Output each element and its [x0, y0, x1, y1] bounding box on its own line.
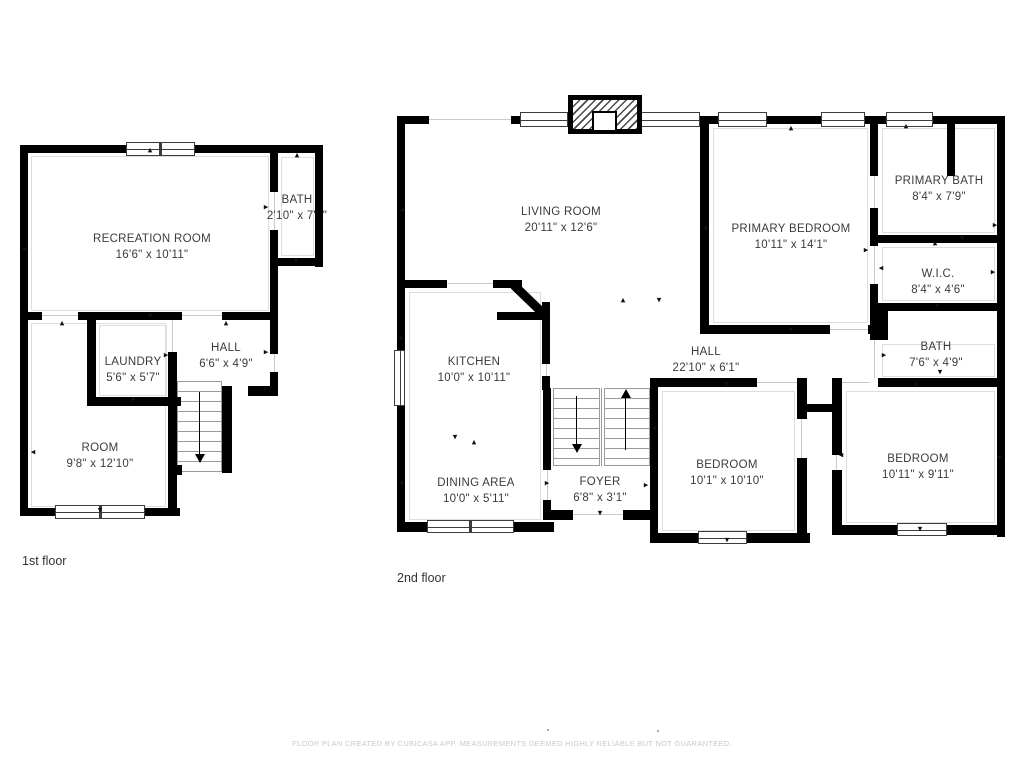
wall-segment [767, 116, 821, 124]
wall-segment [878, 303, 1005, 311]
door-opening-line [874, 340, 875, 378]
door-opening-line [874, 246, 875, 284]
first-floor-label: 1st floor [22, 554, 66, 568]
room-dims: 7'6" x 4'9" [909, 355, 963, 371]
door-swing-marker-icon: ▾ [724, 380, 729, 389]
room-name: LIVING ROOM [521, 204, 601, 220]
room-name: RECREATION ROOM [93, 231, 211, 247]
window-mullion [469, 521, 472, 532]
door-swing-marker-icon: ▴ [472, 438, 477, 447]
door-swing-marker-icon: ▾ [598, 509, 603, 518]
wall-segment [542, 376, 550, 390]
wall-segment [397, 280, 447, 288]
room-dims: 8'4" x 4'6" [911, 282, 965, 298]
door-swing-marker-icon: ▾ [960, 234, 965, 243]
door-swing-marker-icon: ◂ [398, 334, 403, 343]
stair-arrow-stem [625, 398, 626, 450]
room-dims: 6'8" x 3'1" [573, 490, 627, 506]
room-dims: 6'6" x 4'9" [199, 356, 253, 372]
wall-segment [868, 325, 878, 334]
stair-down-arrow-icon [195, 454, 205, 463]
door-swing-marker-icon: ◂ [652, 424, 657, 433]
window-icon [698, 531, 747, 544]
door-swing-marker-icon: ◂ [31, 448, 36, 457]
room-name: ROOM [67, 440, 134, 456]
door-opening-line [546, 364, 547, 376]
wall-segment [870, 284, 878, 312]
door-swing-marker-icon: ◂ [400, 206, 405, 215]
door-swing-marker-icon: ▾ [657, 296, 662, 305]
room-dims: 9'8" x 12'10" [67, 456, 134, 472]
room-label-recreation: RECREATION ROOM 16'6" x 10'11" [93, 231, 211, 263]
wall-segment [650, 378, 757, 387]
door-swing-marker-icon: ▸ [545, 479, 550, 488]
wall-segment [797, 458, 807, 533]
door-opening-line [874, 176, 875, 208]
door-swing-marker-icon: ▾ [98, 506, 103, 515]
room-label-laundry: LAUNDRY 5'6" x 5'7" [105, 354, 162, 386]
room-name: W.I.C. [911, 266, 965, 282]
wall-segment [933, 116, 1005, 124]
room-label-dining: DINING AREA 10'0" x 5'11" [437, 475, 514, 507]
door-swing-marker-icon: ▴ [789, 124, 794, 133]
window-pane-line [400, 351, 401, 405]
stair-down-arrow-icon [572, 444, 582, 453]
wall-segment [168, 397, 177, 516]
room-name: DINING AREA [437, 475, 514, 491]
window-pane-line [719, 120, 766, 121]
room-label-bedroom-left: BEDROOM 10'1" x 10'10" [690, 457, 764, 489]
wall-segment [270, 258, 278, 320]
room-label-kitchen: KITCHEN 10'0" x 10'11" [438, 354, 511, 386]
second-floor-label: 2nd floor [397, 571, 446, 585]
window-icon [394, 350, 405, 406]
door-opening-line [801, 419, 802, 458]
wall-segment [870, 208, 878, 246]
door-swing-marker-icon: ▸ [864, 246, 869, 255]
door-swing-marker-icon: ▸ [993, 221, 998, 230]
window-mullion [159, 143, 162, 155]
door-swing-marker-icon: ▸ [991, 268, 996, 277]
stair-arrow-stem [576, 396, 577, 446]
window-icon [886, 112, 933, 127]
room-name: HALL [199, 340, 253, 356]
window-pane-line [887, 120, 932, 121]
staircase [604, 388, 650, 466]
wall-segment [175, 465, 182, 475]
door-swing-marker-icon: ▸ [998, 453, 1003, 462]
wall-segment [397, 116, 405, 288]
window-icon [641, 112, 700, 127]
wall-segment [797, 404, 842, 412]
door-swing-marker-icon: ▴ [148, 146, 153, 155]
room-name: PRIMARY BEDROOM [731, 221, 850, 237]
room-dims: 5'6" x 5'7" [105, 370, 162, 386]
wall-segment [248, 386, 278, 396]
door-swing-marker-icon: ▴ [914, 379, 919, 388]
room-dims: 20'11" x 12'6" [521, 220, 601, 236]
room-name: PRIMARY BATH [895, 173, 984, 189]
door-swing-marker-icon: ▸ [882, 351, 887, 360]
wall-segment [709, 325, 830, 334]
wall-segment [700, 116, 718, 124]
door-swing-marker-icon: ◂ [839, 451, 844, 460]
stair-arrow-stem [199, 392, 200, 456]
wall-segment [20, 312, 42, 320]
window-pane-line [521, 120, 567, 121]
room-name: KITCHEN [438, 354, 511, 370]
stair-up-arrow-icon [621, 389, 631, 398]
door-swing-marker-icon: ◂ [399, 479, 404, 488]
door-swing-marker-icon: ◂ [703, 224, 708, 233]
door-opening-line [172, 318, 173, 352]
disclaimer-text: FLOOR PLAN CREATED BY CUBICASA APP. MEAS… [0, 739, 1024, 748]
door-swing-marker-icon: ◂ [22, 245, 27, 254]
wall-segment [397, 288, 405, 530]
wall-segment [543, 510, 573, 520]
room-label-wic: W.I.C. 8'4" x 4'6" [911, 266, 965, 298]
door-opening-line [836, 455, 837, 470]
stray-dot [547, 729, 549, 731]
room-name: BEDROOM [690, 457, 764, 473]
window-icon [821, 112, 865, 127]
door-swing-marker-icon: ▾ [935, 302, 940, 311]
wall-segment [878, 378, 1005, 387]
room-dims: 16'6" x 10'11" [93, 247, 211, 263]
room-dims: 10'1" x 10'10" [690, 473, 764, 489]
door-opening-line [830, 329, 868, 330]
window-pane-line [699, 538, 746, 539]
room-label-living: LIVING ROOM 20'11" x 12'6" [521, 204, 601, 236]
door-opening-line [757, 382, 797, 383]
room-name: BATH [909, 339, 963, 355]
wall-segment [832, 470, 842, 525]
room-label-bath-2f: BATH 7'6" x 4'9" [909, 339, 963, 371]
door-swing-marker-icon: ▸ [164, 351, 169, 360]
door-opening-line [429, 119, 511, 120]
room-name: LAUNDRY [105, 354, 162, 370]
wall-segment [947, 124, 955, 176]
door-swing-marker-icon: ▾ [918, 525, 923, 534]
room-dims: 10'0" x 5'11" [437, 491, 514, 507]
door-opening-line [182, 315, 222, 316]
room-name: HALL [673, 344, 740, 360]
room-dims: 8'4" x 7'9" [895, 189, 984, 205]
door-opening-line [274, 354, 275, 372]
stray-dot [657, 730, 659, 732]
room-label-primary-bedroom: PRIMARY BEDROOM 10'11" x 14'1" [731, 221, 850, 253]
door-swing-marker-icon: ▾ [294, 257, 299, 266]
room-name: BEDROOM [882, 451, 954, 467]
wall-segment [832, 378, 842, 455]
room-label-bedroom-right: BEDROOM 10'11" x 9'11" [882, 451, 954, 483]
wall-segment [315, 145, 323, 267]
door-swing-marker-icon: ▴ [295, 151, 300, 160]
wall-segment [878, 235, 1005, 243]
door-swing-marker-icon: ▾ [148, 312, 153, 321]
wall-segment [20, 145, 28, 516]
window-pane-line [642, 120, 699, 121]
wall-segment [623, 510, 658, 520]
room-label-foyer: FOYER 6'8" x 3'1" [573, 474, 627, 506]
floor-plan-page: ▴◂▴▾▸▾▴▴▸▸▾▾◂▴▾◂▸▴◂▸▴▴▾▸◂▾▸▴▾▾◂▾▴◂▸▾▸◂▾◂… [0, 0, 1024, 768]
room-dims: 10'0" x 10'11" [438, 370, 511, 386]
door-swing-marker-icon: ▴ [621, 296, 626, 305]
fireplace-firebox-icon [592, 111, 617, 132]
room-label-hall-1f: HALL 6'6" x 4'9" [199, 340, 253, 372]
door-swing-marker-icon: ▸ [644, 481, 649, 490]
wall-segment [87, 318, 96, 406]
wall-segment [865, 116, 886, 124]
door-opening-line [842, 382, 870, 383]
wall-segment [797, 378, 807, 419]
door-swing-marker-icon: ▴ [904, 122, 909, 131]
room-label-primary-bath: PRIMARY BATH 8'4" x 7'9" [895, 173, 984, 205]
door-opening-line [447, 283, 493, 284]
door-swing-marker-icon: ▴ [224, 319, 229, 328]
door-swing-marker-icon: ▾ [789, 326, 794, 335]
door-swing-marker-icon: ▸ [264, 348, 269, 357]
door-swing-marker-icon: ▴ [60, 319, 65, 328]
door-swing-marker-icon: ▾ [453, 433, 458, 442]
window-icon [427, 520, 514, 533]
door-swing-marker-icon: ▴ [933, 239, 938, 248]
window-icon [520, 112, 568, 127]
staircase-divider-line [604, 388, 605, 466]
wall-segment [270, 152, 278, 192]
room-dims: 10'11" x 9'11" [882, 467, 954, 483]
door-swing-marker-icon: ▸ [264, 203, 269, 212]
room-dims: 10'11" x 14'1" [731, 237, 850, 253]
window-icon [718, 112, 767, 127]
room-label-hall-2f: HALL 22'10" x 6'1" [673, 344, 740, 376]
window-icon [126, 142, 195, 156]
room-label-room: ROOM 9'8" x 12'10" [67, 440, 134, 472]
room-name: FOYER [573, 474, 627, 490]
wall-segment [997, 116, 1005, 537]
door-swing-marker-icon: ▾ [938, 368, 943, 377]
door-swing-marker-icon: ▾ [725, 536, 730, 545]
window-pane-line [822, 120, 864, 121]
door-swing-marker-icon: ◂ [879, 264, 884, 273]
wall-segment [222, 386, 232, 473]
wall-segment [870, 124, 878, 176]
wall-segment [270, 318, 278, 354]
staircase-divider-line [601, 388, 602, 466]
wall-segment [543, 388, 551, 470]
door-swing-marker-icon: ▾ [131, 396, 136, 405]
room-dims: 22'10" x 6'1" [673, 360, 740, 376]
door-opening-line [42, 315, 78, 316]
